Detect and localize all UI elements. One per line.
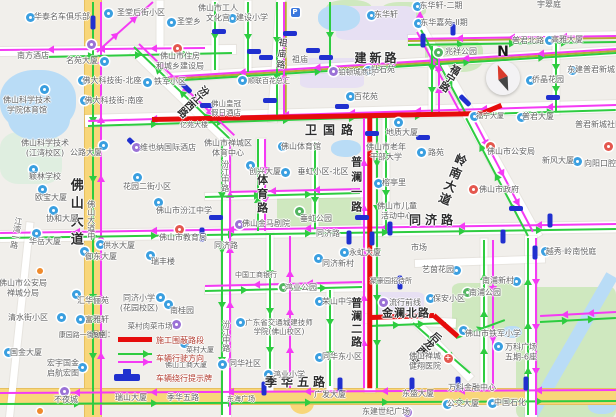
map-label: 佛山市工人 文化宫 (198, 3, 238, 22)
poi-icon[interactable] (100, 57, 109, 66)
direction-arrow-icon (241, 286, 248, 294)
direction-arrow-icon (89, 176, 97, 183)
map-label: 维也纳国际酒店 (140, 143, 196, 153)
detour-sign (365, 131, 379, 136)
direction-arrow-icon (326, 319, 334, 326)
map-label: 宏宇国金 启航宏图 (47, 358, 79, 377)
poi-icon[interactable] (154, 198, 163, 207)
road-name-label: 普澜一路 (349, 156, 362, 216)
map-label: 清水街小区 (8, 313, 48, 323)
poi-icon[interactable] (143, 78, 152, 87)
poi-icon[interactable] (167, 18, 176, 27)
metro-poi-icon[interactable] (87, 40, 96, 49)
direction-arrow-icon (552, 86, 560, 93)
map-label: 供水大厦 (103, 241, 135, 251)
direction-arrow-icon (561, 311, 568, 319)
traffic-direction-line (470, 114, 534, 233)
map-label: 佛山禅城 健翔医院 (409, 351, 441, 370)
map-label: 不夜城 (54, 395, 78, 405)
poi-icon[interactable] (104, 9, 113, 18)
map-label: 季华五路 (167, 393, 199, 403)
map-label: 南桂园 (170, 306, 194, 316)
park-poi-icon[interactable] (434, 48, 443, 57)
metro-poi-icon[interactable] (379, 298, 388, 307)
direction-arrow-icon (111, 30, 122, 41)
road-strip (157, 0, 164, 48)
detour-sign (388, 221, 393, 235)
map-label: 福宁大厦 (476, 112, 504, 120)
map-label: 佛大科技街-北座 (83, 76, 142, 86)
map-label: 佛山市教育局 (159, 233, 207, 243)
road-name-label: 体育路 (255, 174, 268, 216)
map-label: 路苑 (428, 148, 444, 158)
map-label: 艺茵花园 (422, 265, 454, 275)
map-label: 普君新城社区 (575, 120, 616, 130)
map-label: 汾江中路 (220, 160, 230, 192)
legend-item-detour: 车辆绕行提示牌 (156, 373, 212, 384)
map-label: 侨晶花园 (532, 75, 564, 85)
direction-arrow-icon (266, 347, 274, 354)
water-area (318, 5, 360, 31)
direction-arrow-icon (313, 63, 320, 71)
detour-sign (306, 48, 320, 53)
map-label: 向阳口腔医院 (584, 159, 616, 169)
map-label: 佛山市公安局 (487, 147, 535, 157)
direction-arrow-icon (393, 321, 400, 329)
detour-sign (509, 206, 523, 211)
poi-icon[interactable] (340, 248, 349, 257)
map-label: 颖林学校 (29, 172, 61, 182)
direction-arrow-icon (150, 388, 157, 396)
direction-arrow-icon (269, 187, 276, 195)
map-label: 佛山市政府 (479, 185, 519, 195)
map-label: 建设小学 (236, 13, 268, 23)
poi-icon[interactable] (49, 206, 58, 215)
poi-icon[interactable] (417, 148, 426, 157)
map-label: 榕亭里 (382, 178, 406, 188)
map-label: 佛山大道中 (86, 200, 96, 240)
map-label: 佛山科学技术 学院体育馆 (3, 95, 51, 114)
map-label: 东建世纪广场 (362, 407, 410, 417)
road-name-label: 卫国路 (305, 123, 359, 137)
map-label: 御东大厦 (85, 252, 117, 262)
map-label: 中国工商银行 (235, 271, 277, 279)
direction-arrow-icon (524, 278, 532, 285)
map-label: 同华东小区 (322, 352, 362, 362)
detour-sign (259, 55, 273, 60)
map-label: 南浦公园 (469, 288, 501, 298)
direction-arrow-icon (305, 398, 312, 406)
north-label: N (486, 44, 520, 60)
legend-item-closure: 施工围蔽路段 (156, 335, 204, 346)
map-label: 祖庙 (292, 55, 308, 65)
map-label: 佛山皇冠 假日酒店 (211, 99, 241, 117)
legend-title: 图例： (91, 329, 115, 340)
parking-icon[interactable] (291, 8, 300, 17)
compass-dial (486, 61, 520, 95)
government-poi-icon[interactable] (604, 142, 613, 151)
poi-icon[interactable] (32, 229, 41, 238)
direction-arrow-icon (97, 175, 105, 182)
map-label: 聚豪园招待所 (370, 277, 412, 285)
direction-arrow-icon (480, 347, 488, 354)
road-name-label: 金澜北路 (382, 306, 430, 319)
road-name-label: 建新路 (354, 51, 399, 65)
map-label: 铁军小区 (154, 77, 186, 87)
map-label: 国金大厦 (10, 348, 42, 358)
dot-poi-icon[interactable] (37, 268, 43, 274)
map-label: 汇华俪苑 (77, 296, 109, 306)
map-label: 同济路 (214, 241, 238, 251)
detour-sign (283, 31, 297, 36)
map-label: 广东省交通城建技师 学院(佛山校区) (245, 318, 313, 336)
magenta-direction-arrow-swatch (118, 361, 152, 363)
map-label: 佛山市铁军小学 (465, 329, 521, 339)
map-label: 永虹大厦 (349, 248, 381, 258)
government-poi-icon[interactable] (175, 225, 184, 234)
map-label: 市场 (411, 243, 427, 253)
map-label: 东海广场 (227, 395, 255, 403)
map-label: 万科广场 五期-6座 (505, 342, 537, 361)
map-label: 佛山市汾江中学 (156, 206, 212, 216)
map-label: 东盛大厦 (402, 389, 434, 399)
map-label: 鸿业小学 (273, 370, 305, 380)
dot-poi-icon[interactable] (37, 408, 43, 414)
road-name-label: 同济路 (409, 213, 457, 227)
traffic-direction-line (269, 234, 271, 388)
direction-arrow-icon (480, 310, 488, 317)
map-label: 佛山金马剧院 (242, 219, 290, 229)
map-label: 同济新村 (322, 259, 354, 269)
direction-arrow-icon (211, 33, 219, 40)
map-label: 欧宝大厦 (35, 193, 67, 203)
metro-poi-icon[interactable] (60, 387, 69, 396)
map-label: 南方酒店 (17, 51, 49, 61)
traffic-direction-line (483, 240, 485, 388)
direction-arrow-icon (524, 323, 532, 330)
direction-arrow-icon (416, 11, 424, 18)
water-area (331, 140, 361, 157)
direction-arrow-icon (382, 190, 390, 197)
map-label: 南浦新村 (482, 276, 514, 286)
direction-arrow-icon (435, 64, 443, 71)
direction-arrow-icon (536, 397, 543, 405)
closed-road-swatch (118, 337, 152, 342)
poi-icon[interactable] (76, 315, 85, 324)
legend-item-direction: 车辆行驶方向 (156, 353, 204, 364)
map-label: 百花苑 (354, 92, 378, 102)
detour-sign (370, 231, 375, 245)
direction-arrow-icon (150, 227, 157, 235)
detour-sign (548, 213, 553, 227)
map-label: 高雅大厦 (551, 35, 583, 45)
detour-sign (347, 230, 352, 244)
map-label: 兆祥公园 (445, 47, 477, 57)
detour-sign (335, 104, 349, 109)
map-label: 佛山体育馆 (281, 142, 321, 152)
map-label: 东华嘉苑-II期 (420, 18, 468, 28)
map-label: 瑞丰楼 (151, 257, 175, 267)
poi-icon[interactable] (38, 185, 47, 194)
detour-sign (421, 33, 426, 47)
map-label: 垂虹小区-北区 (298, 167, 349, 177)
direction-arrow-icon (552, 64, 560, 71)
direction-arrow-icon (286, 346, 294, 353)
poi-icon[interactable] (394, 118, 403, 127)
direction-arrow-icon (586, 309, 593, 317)
detour-sign (546, 95, 560, 100)
map-label: 地质大厦 (386, 128, 418, 138)
map-label: 东华轩-二期 (420, 1, 463, 11)
map-label: 圣堂后街小区 (117, 8, 165, 18)
direction-arrow-icon (218, 302, 226, 309)
map-label: 公路大厦 (70, 148, 102, 158)
traffic-direction-line (431, 46, 433, 112)
direction-arrow-icon (286, 308, 294, 315)
map-label: 宇翠庭 (537, 0, 561, 10)
metro-poi-icon[interactable] (329, 67, 338, 76)
map-label: 同济路 (316, 229, 340, 239)
detour-sign (338, 377, 343, 391)
poi-icon[interactable] (494, 342, 503, 351)
map-label: 公交大厦 (447, 399, 479, 409)
direction-arrow-icon (244, 34, 252, 41)
map-label: 鸿业公园 (285, 283, 317, 293)
map-label: 瑞山大厦 (115, 393, 147, 403)
government-poi-icon[interactable] (469, 185, 478, 194)
map-canvas[interactable]: N 图例： 施工围蔽路段 车辆行驶方向 车辆绕行提示牌 华泰名车俱乐部圣堂后街小… (0, 0, 616, 417)
poi-icon[interactable] (133, 173, 142, 182)
direction-arrow-icon (458, 222, 465, 230)
direction-arrow-icon (524, 367, 532, 374)
direction-arrow-icon (304, 224, 311, 232)
map-label: 广发大厦 (314, 390, 346, 400)
direction-arrow-icon (151, 399, 158, 407)
direction-arrow-icon (535, 221, 542, 229)
direction-arrow-icon (226, 301, 234, 308)
map-label: 保安小区 (433, 294, 465, 304)
direction-arrow-icon (320, 284, 327, 292)
direction-arrow-icon (286, 270, 294, 277)
map-label: 东华轩 (374, 10, 398, 20)
map-label: 佛山市住房 和城乡建设局 (156, 51, 204, 70)
poi-icon[interactable] (238, 76, 247, 85)
map-label: 同济小学 (花园校区) (120, 293, 158, 312)
map-label: 协和大厦 (46, 214, 78, 224)
road-name-label: 岭南大道 (435, 151, 469, 208)
detour-sign (524, 376, 529, 390)
map-label: 佛大科技街-南座 (85, 96, 144, 106)
poi-icon[interactable] (40, 85, 49, 94)
direction-arrow-icon (537, 49, 544, 57)
poi-icon[interactable] (57, 313, 66, 322)
detour-sign (416, 135, 430, 140)
traffic-direction-line (465, 118, 529, 237)
map-label: 佛山市公安局 禅城分局 (0, 278, 47, 297)
map-label: 东建普君新城 (567, 65, 615, 75)
map-label: 华泰名车俱乐部 (34, 12, 90, 22)
map-label: 顺联百花总汇 (248, 77, 290, 85)
road-name-label: 普澜二路 (349, 297, 362, 349)
map-label: 江湾一路 (8, 216, 23, 249)
direction-arrow-icon (305, 190, 312, 198)
detour-sign (247, 49, 261, 54)
detour-sign (263, 98, 277, 103)
map-label: 普君大厦 (522, 112, 554, 122)
direction-arrow-icon (381, 387, 388, 395)
direction-arrow-icon (313, 186, 320, 194)
direction-arrow-icon (253, 281, 260, 289)
compass: N (486, 44, 520, 100)
map-label: 垂虹公园 (300, 214, 332, 224)
direction-arrow-icon (532, 324, 540, 331)
detour-sign (501, 229, 506, 243)
map-label: 同华社区 (229, 359, 261, 369)
green-direction-arrow-swatch (118, 353, 152, 355)
compass-needle-icon (481, 56, 525, 100)
traffic-direction-line (535, 238, 537, 415)
map-label: 万科金融中心 (448, 383, 496, 393)
map-label: 亿苑大楼 (180, 121, 208, 129)
detour-sign-swatch (114, 374, 140, 381)
direction-arrow-icon (532, 279, 540, 286)
map-label: 华岳大厦 (29, 237, 61, 247)
poi-icon[interactable] (236, 318, 245, 327)
detour-sign (212, 29, 226, 34)
map-label: 新风大厦 (542, 156, 574, 166)
detour-sign (91, 15, 96, 29)
direction-arrow-icon (266, 308, 274, 315)
detour-sign (319, 55, 333, 60)
map-legend: 图例： 施工围蔽路段 车辆行驶方向 车辆绕行提示牌 (88, 326, 228, 388)
direction-arrow-icon (532, 368, 540, 375)
direction-arrow-icon (373, 340, 381, 347)
map-label: 佛山市老年 干部大学 (366, 142, 406, 161)
direction-arrow-icon (382, 398, 389, 406)
direction-arrow-icon (326, 32, 334, 39)
traffic-direction-line (285, 2, 287, 113)
map-label: 富雅轩 (85, 315, 109, 325)
traffic-direction-line (492, 240, 494, 388)
map-label: 名苑大厦 (66, 56, 98, 66)
poi-icon[interactable] (281, 168, 290, 177)
map-label: 越秀·岭南悦庭 (546, 247, 597, 257)
map-label: 花园二街小区 (123, 182, 171, 192)
map-label: 钻石苑 (371, 65, 395, 75)
traffic-direction-line (289, 236, 291, 388)
map-label: 佛山科学技术 (江湾校区) (21, 138, 69, 157)
map-label: 佛山市禅城区 体育中心 (204, 138, 252, 157)
hospital-poi-icon[interactable] (444, 354, 453, 363)
map-label: 中国石化 (494, 398, 526, 408)
detour-sign (533, 245, 538, 259)
